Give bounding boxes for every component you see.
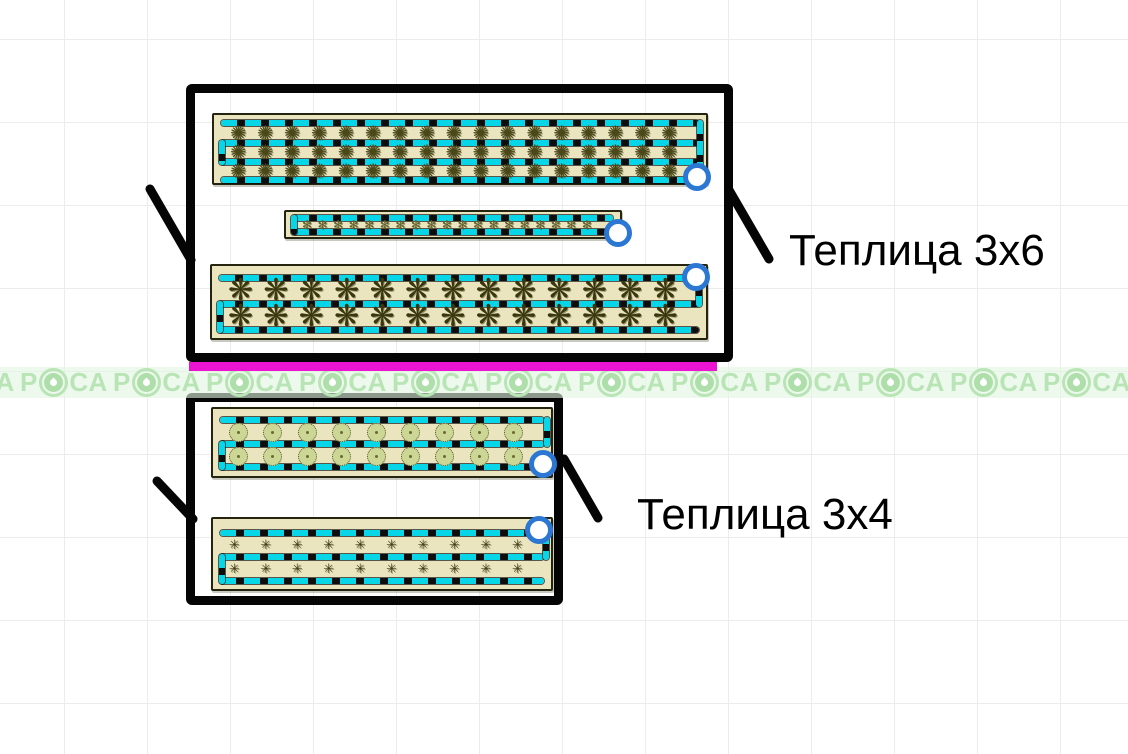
droplet-icon <box>235 378 245 388</box>
drip-irrigation-line <box>220 530 544 536</box>
plant-icon: ✺ <box>634 161 651 181</box>
watermark-logo-circle <box>509 373 528 392</box>
drag-handle[interactable] <box>683 163 711 191</box>
droplet-icon <box>328 378 338 388</box>
watermark-unit: РСА <box>20 367 113 398</box>
plant-icon: ✺ <box>661 161 678 181</box>
watermark-logo-ring <box>876 368 905 397</box>
drawing-canvas[interactable]: РСАРСАРСАРСАРСАРСАРСАРСАРСАРСАРСАРСАРСА … <box>0 0 1128 754</box>
plant-icon: ✳ <box>481 563 492 576</box>
drag-handle[interactable] <box>525 516 553 544</box>
drip-irrigation-connector <box>219 140 225 165</box>
watermark-letter-suffix: СА <box>813 367 852 398</box>
watermark-logo-ring <box>132 368 161 397</box>
droplet-icon <box>886 378 896 388</box>
watermark-unit: РСА <box>0 367 20 398</box>
watermark-letter-suffix: СА <box>627 367 666 398</box>
watermark-letter-prefix: Р <box>950 367 968 398</box>
plant-icon: ✻ <box>411 219 421 231</box>
watermark-logo-ring <box>1062 368 1091 397</box>
greenhouse-label[interactable]: Теплица 3x6 <box>789 226 1045 276</box>
plant-icon: ✳ <box>292 539 303 552</box>
droplet-icon <box>49 378 59 388</box>
watermark-unit: РСА <box>857 367 950 398</box>
garden-bed[interactable]: ✺✺✺✺✺✺✺✺✺✺✺✺✺✺✺✺✺✺✺✺✺✺✺✺✺✺✺✺✺✺✺✺✺✺✺✺✺✺✺✺… <box>212 113 708 185</box>
plant-icon: ❋ <box>582 302 607 332</box>
plant-icon <box>332 423 351 442</box>
magenta-line[interactable] <box>189 362 717 371</box>
plant-row: ✻✻✻✻✻✻✻✻✻✻✻✻✻✻✻✻✻✻✻ <box>302 219 592 231</box>
plant-icon: ✻ <box>520 219 530 231</box>
plant-icon: ✳ <box>260 563 271 576</box>
watermark-unit: РСА <box>578 367 671 398</box>
drip-irrigation-connector <box>217 301 223 333</box>
droplet-icon <box>793 378 803 388</box>
plant-icon: ✳ <box>355 563 366 576</box>
plant-icon <box>470 447 489 466</box>
leader-line[interactable] <box>729 190 769 259</box>
plant-icon: ✺ <box>607 161 624 181</box>
plant-icon: ✳ <box>418 539 429 552</box>
watermark-logo-ring <box>969 368 998 397</box>
plant-icon <box>470 423 489 442</box>
plant-icon: ✺ <box>284 161 301 181</box>
plant-icon: ✺ <box>311 161 328 181</box>
plant-icon <box>263 447 282 466</box>
watermark-logo-ring <box>597 368 626 397</box>
plant-icon: ✳ <box>323 563 334 576</box>
plant-icon: ✳ <box>418 563 429 576</box>
plant-icon <box>504 423 523 442</box>
plant-icon <box>401 423 420 442</box>
plant-icon: ✺ <box>472 161 489 181</box>
watermark-unit: РСА <box>950 367 1043 398</box>
watermark-letter-prefix: Р <box>578 367 596 398</box>
plant-icon: ✻ <box>489 219 499 231</box>
watermark-logo-circle <box>416 373 435 392</box>
plant-icon: ✻ <box>302 219 312 231</box>
watermark-unit: РСА <box>671 367 764 398</box>
plant-icon: ✺ <box>553 161 570 181</box>
watermark-letter-prefix: Р <box>671 367 689 398</box>
plant-icon: ✳ <box>323 539 334 552</box>
plant-icon: ❋ <box>547 302 572 332</box>
plant-icon: ✻ <box>442 219 452 231</box>
plant-icon: ✻ <box>473 219 483 231</box>
drip-irrigation-line <box>220 578 544 584</box>
plant-icon <box>263 423 282 442</box>
plant-icon: ✳ <box>386 539 397 552</box>
plant-icon: ✳ <box>229 539 240 552</box>
plant-icon: ✻ <box>504 219 514 231</box>
plant-icon: ✳ <box>229 563 240 576</box>
plant-icon: ❋ <box>511 302 536 332</box>
plant-icon: ❋ <box>228 302 253 332</box>
plant-icon: ✻ <box>349 219 359 231</box>
plant-icon: ✻ <box>582 219 592 231</box>
watermark-unit: РСА <box>1043 367 1128 398</box>
plant-icon: ✻ <box>457 219 467 231</box>
watermark-letter-prefix: Р <box>764 367 782 398</box>
plant-icon <box>435 447 454 466</box>
plant-icon: ✺ <box>499 161 516 181</box>
plant-icon: ✻ <box>535 219 545 231</box>
plant-icon: ✳ <box>512 539 523 552</box>
watermark-logo-circle <box>323 373 342 392</box>
drag-handle[interactable] <box>682 263 710 291</box>
plant-icon <box>332 447 351 466</box>
plant-icon: ❋ <box>440 302 465 332</box>
plant-icon <box>298 423 317 442</box>
plant-row: ✳✳✳✳✳✳✳✳✳✳ <box>229 563 523 576</box>
plant-icon <box>504 447 523 466</box>
watermark-letter-prefix: Р <box>857 367 875 398</box>
plant-icon <box>401 447 420 466</box>
plant-icon: ✳ <box>449 539 460 552</box>
droplet-icon <box>514 378 524 388</box>
drag-handle[interactable] <box>604 219 632 247</box>
plant-row: ✳✳✳✳✳✳✳✳✳✳ <box>229 539 523 552</box>
plant-icon: ✺ <box>580 161 597 181</box>
watermark-letter-prefix: Р <box>20 367 38 398</box>
plant-icon <box>367 423 386 442</box>
plant-icon: ✻ <box>426 219 436 231</box>
plant-icon: ✻ <box>551 219 561 231</box>
watermark-logo-circle <box>1067 373 1086 392</box>
plant-icon: ✳ <box>449 563 460 576</box>
watermark-logo-circle <box>695 373 714 392</box>
drip-irrigation-connector <box>219 554 225 584</box>
plant-row <box>229 447 523 466</box>
watermark-logo-circle <box>788 373 807 392</box>
plant-icon: ❋ <box>653 302 678 332</box>
plant-row <box>229 423 523 442</box>
plant-icon: ❋ <box>334 302 359 332</box>
plant-icon: ✳ <box>386 563 397 576</box>
watermark-logo-circle <box>602 373 621 392</box>
plant-icon <box>367 447 386 466</box>
garden-bed[interactable] <box>211 407 553 478</box>
plant-icon: ✻ <box>333 219 343 231</box>
droplet-icon <box>607 378 617 388</box>
droplet-icon <box>421 378 431 388</box>
watermark-letter-suffix: СА <box>1092 367 1128 398</box>
plant-icon: ❋ <box>263 302 288 332</box>
watermark-logo-circle <box>137 373 156 392</box>
watermark-band: РСАРСАРСАРСАРСАРСАРСАРСАРСАРСАРСАРСАРСА <box>0 367 1128 398</box>
leader-line[interactable] <box>564 459 598 518</box>
plant-icon <box>435 423 454 442</box>
droplet-icon <box>1072 378 1082 388</box>
watermark-letter-suffix: СА <box>906 367 945 398</box>
plant-icon: ❋ <box>405 302 430 332</box>
leader-line[interactable] <box>150 189 191 260</box>
plant-icon: ✺ <box>365 161 382 181</box>
plant-icon: ✳ <box>260 539 271 552</box>
garden-bed[interactable]: ✳✳✳✳✳✳✳✳✳✳✳✳✳✳✳✳✳✳✳✳ <box>211 517 553 591</box>
watermark-logo-circle <box>44 373 63 392</box>
watermark-letter-suffix: СА <box>69 367 108 398</box>
watermark-letter-prefix: Р <box>113 367 131 398</box>
plant-icon: ✺ <box>257 161 274 181</box>
plant-icon: ✻ <box>364 219 374 231</box>
plant-icon: ✻ <box>566 219 576 231</box>
plant-icon: ✳ <box>512 563 523 576</box>
drip-irrigation-connector <box>291 215 297 235</box>
plant-row: ❋❋❋❋❋❋❋❋❋❋❋❋❋ <box>228 302 678 332</box>
plant-row: ✺✺✺✺✺✺✺✺✺✺✺✺✺✺✺✺✺ <box>230 161 678 181</box>
plant-icon: ✺ <box>419 161 436 181</box>
watermark-letter-suffix: СА <box>999 367 1038 398</box>
plant-icon: ✳ <box>355 539 366 552</box>
plant-icon <box>229 447 248 466</box>
plant-icon: ✻ <box>318 219 328 231</box>
watermark-logo-ring <box>783 368 812 397</box>
watermark-logo-circle <box>230 373 249 392</box>
plant-icon: ✳ <box>292 563 303 576</box>
drag-handle[interactable] <box>529 450 557 478</box>
watermark-letter-prefix: Р <box>1043 367 1061 398</box>
drip-irrigation-connector <box>219 441 225 470</box>
garden-bed[interactable]: ❋❋❋❋❋❋❋❋❋❋❋❋❋❋❋❋❋❋❋❋❋❋❋❋❋❋ <box>210 264 708 340</box>
droplet-icon <box>700 378 710 388</box>
droplet-icon <box>142 378 152 388</box>
plant-icon: ✳ <box>481 539 492 552</box>
watermark-logo-ring <box>39 368 68 397</box>
plant-icon: ❋ <box>370 302 395 332</box>
plant-icon: ❋ <box>476 302 501 332</box>
watermark-logo-circle <box>881 373 900 392</box>
garden-bed[interactable]: ✻✻✻✻✻✻✻✻✻✻✻✻✻✻✻✻✻✻✻ <box>284 210 622 239</box>
plant-icon: ✻ <box>395 219 405 231</box>
plant-icon: ❋ <box>299 302 324 332</box>
plant-icon: ✺ <box>338 161 355 181</box>
watermark-unit: РСА <box>764 367 857 398</box>
plant-icon: ✺ <box>446 161 463 181</box>
greenhouse-label[interactable]: Теплица 3x4 <box>637 490 893 540</box>
watermark-logo-ring <box>690 368 719 397</box>
plant-icon: ✺ <box>392 161 409 181</box>
droplet-icon <box>979 378 989 388</box>
watermark-logo-circle <box>974 373 993 392</box>
plant-icon: ✺ <box>230 161 247 181</box>
plant-icon: ✺ <box>526 161 543 181</box>
watermark-letter-suffix: СА <box>720 367 759 398</box>
drip-irrigation-connector <box>544 417 550 447</box>
drip-irrigation-line <box>220 554 544 560</box>
plant-icon: ❋ <box>617 302 642 332</box>
watermark-letter-suffix: СА <box>0 367 15 398</box>
plant-icon <box>229 423 248 442</box>
plant-icon <box>298 447 317 466</box>
plant-icon: ✻ <box>380 219 390 231</box>
